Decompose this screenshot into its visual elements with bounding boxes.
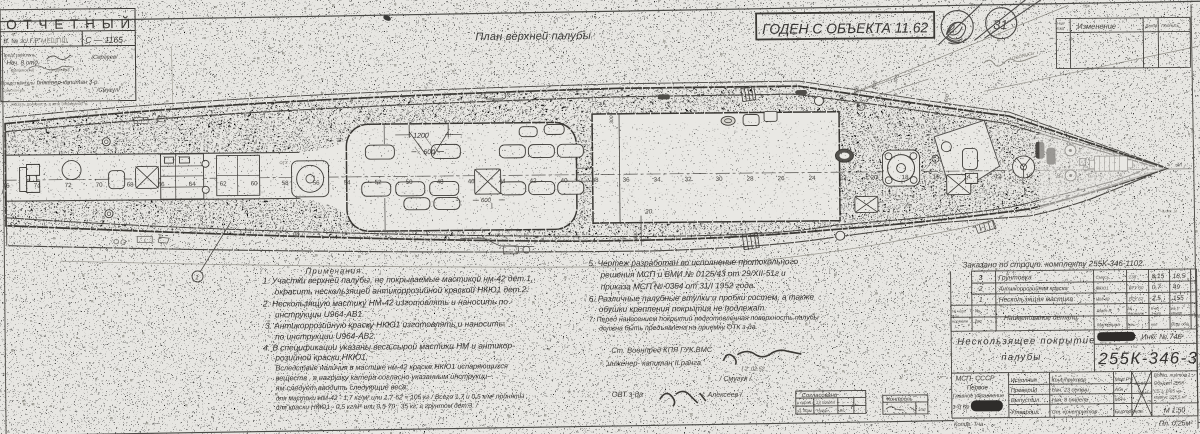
svg-text:листов 1: листов 1 (1169, 372, 1191, 378)
svg-text:МСП- СССР: МСП- СССР (956, 375, 995, 382)
svg-text:72: 72 (65, 182, 73, 189)
svg-text:розийной краски НКЮ1,: розийной краски НКЮ1, (274, 352, 368, 363)
svg-text:68: 68 (127, 181, 135, 188)
svg-text:Прим: Прим (1192, 312, 1200, 317)
svg-text:инженер-капитан 3-р.: инженер-капитан 3-р. (37, 80, 99, 87)
svg-text:нормали: нормали (952, 318, 968, 323)
svg-text:гл.: гл. (840, 408, 845, 413)
svg-text:Заказано по строит. комплект: Заказано по строит. комплекту 255К-346-1… (962, 259, 1144, 270)
svg-text:52.: 52. (1139, 391, 1145, 396)
svg-text:16.15: 16.15 (1135, 381, 1147, 386)
svg-text:Нач. 23 секции: Нач. 23 секции (1052, 387, 1089, 393)
svg-text:приказа МСП № 0364 от 31/: приказа МСП № 0364 от 31/I 1952 года. (601, 281, 756, 291)
svg-text:з-д №: з-д № (952, 403, 970, 410)
svg-text:Объект 255К: Объект 255К (1154, 380, 1186, 386)
svg-text:Нач. 8 отдела: Нач. 8 отдела (1052, 397, 1088, 403)
svg-text:Согласовано: Согласовано (802, 393, 838, 399)
svg-text:Евд: Евд (1057, 27, 1065, 31)
svg-text:Антикоррозийная краска: Антикоррозийная краска (998, 285, 1069, 293)
svg-text:28: 28 (747, 176, 755, 183)
svg-text:0,15: 0,15 (1152, 273, 1165, 280)
svg-text:Ст. Военпред КПЯ ГУК ВМС: Ст. Военпред КПЯ ГУК ВМС (611, 345, 713, 355)
svg-text:/. Алексеев /.: /. Алексеев /. (701, 392, 744, 399)
svg-text:Абч: Абч (1114, 387, 1124, 393)
svg-text:66: 66 (158, 181, 166, 188)
svg-text:Дата: Дата (1144, 23, 1157, 28)
svg-text:Ст. конструктор: Ст. конструктор (1052, 409, 1098, 415)
svg-text:3: 3 (979, 275, 983, 282)
svg-text:обушки крепления покрытия н: обушки крепления покрытия не подлежат. (599, 303, 767, 314)
svg-text:Нов: Нов (1057, 22, 1064, 26)
svg-text:Грунтовка: Грунтовка (999, 274, 1032, 281)
svg-text:(подпись): (подпись) (51, 67, 70, 72)
svg-text:НКЮ1: НКЮ1 (1096, 286, 1110, 291)
svg-text:24: 24 (809, 175, 817, 182)
svg-text:дет: дет (975, 318, 982, 323)
svg-text:Конструктор: Конструктор (1052, 377, 1087, 383)
svg-text:50: 50 (406, 179, 414, 186)
svg-text:инженер- капитан II ранга: инженер- капитан II ранга (607, 358, 701, 368)
svg-text:Нескользящая мастика: Нескользящая мастика (999, 296, 1074, 304)
svg-text:нач.: нач. (1128, 322, 1135, 327)
svg-text:255К-346-3: 255К-346-3 (1097, 349, 1198, 368)
svg-text:62: 62 (220, 181, 228, 188)
svg-text:40: 40 (561, 177, 569, 184)
svg-text:ГОДЕН С ОБЪЕКТА 11.62: ГОДЕН С ОБЪЕКТА 11.62 (762, 19, 928, 37)
svg-text:(должность): (должность) (11, 67, 35, 72)
svg-text:М 1:50: М 1:50 (1164, 407, 1186, 414)
svg-text:зам.нач-ка: зам.нач-ка (4, 88, 25, 93)
svg-text:1 шт: 1 шт (1151, 311, 1162, 316)
svg-text:( 2 .02.52: ( 2 .02.52 (741, 366, 764, 372)
svg-text:Инб. № 746: Инб. № 746 (1141, 332, 1183, 341)
svg-text:Представитель: Представитель (1, 52, 35, 58)
svg-text:Всgo общ.: Всgo общ. (1171, 321, 1190, 326)
svg-text:№: № (975, 308, 980, 313)
svg-text:инструкции U964-АВ1.: инструкции U964-АВ1. (275, 309, 365, 320)
svg-text:Наименование детали: Наименование детали (1004, 313, 1077, 322)
svg-text:должна быть предъявлена на: должна быть предъявлена на приемку ОТК з… (599, 323, 757, 333)
svg-text:46: 46 (468, 178, 476, 185)
svg-text:60: 60 (251, 180, 259, 187)
svg-text:32: 32 (685, 176, 693, 183)
svg-text:52: 52 (375, 179, 383, 186)
svg-text:18,5: 18,5 (1173, 273, 1186, 280)
svg-text:Смесь: Смесь (1096, 275, 1110, 280)
svg-text:п.п: п.п (1176, 162, 1183, 167)
svg-text:компл: компл (1171, 310, 1183, 315)
svg-text:36: 36 (623, 177, 631, 184)
svg-text:Нач. 8 отд.: Нач. 8 отд. (6, 59, 39, 66)
svg-text:300: 300 (609, 115, 615, 124)
svg-text:30: 30 (716, 176, 724, 183)
svg-text:1/52: 1/52 (918, 407, 927, 412)
svg-text:/Смукул/: /Смукул/ (96, 88, 122, 94)
svg-text:Выпустил: Выпустил (1011, 398, 1040, 404)
svg-text:План верхней палубы: План верхней палубы (475, 30, 591, 43)
svg-text:С — 1165: С — 1165 (85, 35, 123, 45)
svg-text:Подпись: Подпись (1161, 23, 1180, 28)
svg-text:600: 600 (633, 231, 639, 240)
svg-text:74: 74 (34, 182, 42, 189)
svg-text:31: 31 (993, 17, 1008, 32)
svg-text:Д. Вам: Д. Вам (797, 408, 812, 413)
svg-text:13 отдел: 13 отдел (816, 400, 836, 405)
svg-text:Быстрюков: Быстрюков (1115, 409, 1143, 415)
svg-text:Изменение: Изменение (1077, 22, 1116, 31)
svg-text:Мор Р'б: Мор Р'б (1115, 377, 1133, 383)
svg-text:МЯч: МЯч (1115, 397, 1126, 403)
svg-text:2: 2 (978, 286, 983, 293)
svg-text:ОВТ з-да: ОВТ з-да (612, 390, 643, 399)
svg-text:Материал: Материал (1097, 322, 1120, 327)
svg-text:1: 1 (195, 274, 199, 281)
svg-text:76: 76 (3, 183, 11, 190)
svg-text:ВТУ 30: ВТУ 30 (1129, 285, 1144, 290)
svg-text:Мат-л: Мат-л (1097, 308, 1112, 313)
svg-text:Нудин: Нудин (817, 408, 829, 413)
svg-text:Проверил: Проверил (1011, 388, 1038, 394)
svg-text:указать должность в акте (п: указать должность в акте (передача) (11, 101, 83, 107)
svg-text:55х: 55х (1083, 3, 1091, 8)
svg-text:Копир. Тча: Копир. Тча (954, 422, 984, 428)
svg-text:58: 58 (282, 180, 290, 187)
svg-text:54: 54 (344, 179, 352, 186)
svg-text:70: 70 (96, 182, 104, 189)
svg-text:64: 64 (189, 181, 197, 188)
svg-text:С5.1. В 25 чо: С5.1. В 25 чо (1154, 388, 1182, 393)
svg-text:Контроль: Контроль (887, 397, 913, 403)
svg-text:решения МСП и ВМИ № 0125: решения МСП и ВМИ № 0125/43 от 29/ХII-51… (600, 269, 787, 280)
svg-text:0,7: 0,7 (1152, 284, 1161, 291)
svg-text:Исполнил: Исполнил (1011, 378, 1038, 384)
svg-text:Первое: Первое (967, 384, 989, 391)
svg-text:кол: кол (1151, 322, 1158, 327)
svg-text:ВТУ 62: ВТУ 62 (1129, 296, 1144, 301)
svg-text:/ Смугул /.: / Смугул /. (719, 376, 754, 383)
svg-text:138: 138 (1129, 274, 1137, 279)
svg-text:/Сергеев/: /Сергеев/ (90, 55, 119, 61)
svg-text:49: 49 (1173, 284, 1181, 291)
svg-text:НМ-42: НМ-42 (1096, 297, 1110, 302)
svg-text:155: 155 (1173, 295, 1184, 302)
svg-text:2,5: 2,5 (1151, 295, 1161, 302)
svg-text:Чист. м: Чист. м (1160, 208, 1177, 213)
svg-text:Главное управление: Главное управление (953, 393, 1004, 399)
svg-text:42: 42 (530, 178, 538, 185)
svg-text:Утвердил: Утвердил (1010, 410, 1039, 416)
svg-text:38: 38 (592, 177, 600, 184)
svg-text:34: 34 (654, 176, 662, 183)
svg-text:Пл. 0,25м²: Пл. 0,25м² (1159, 420, 1193, 427)
svg-text:В. № зс/ Г.Р. МЕШПШ: В. № зс/ Г.Р. МЕШПШ (3, 38, 67, 46)
svg-text:56: 56 (313, 180, 321, 187)
svg-text:1: 1 (979, 297, 983, 304)
svg-text:Нескользящее покрытие: Нескользящее покрытие (957, 335, 1096, 347)
svg-text:нормали: нормали (1128, 311, 1145, 316)
svg-text:корпус 225,5 м²: корпус 225,5 м² (1154, 394, 1187, 399)
svg-text:Представитель: Представитель (1, 80, 35, 86)
svg-text:ям следует вводить следующи: ям следует вводить следующие веса: (275, 382, 409, 392)
svg-text:и офэл: и офэл (797, 400, 812, 405)
svg-text:по инструкции U964-АВ2.: по инструкции U964-АВ2. (275, 331, 376, 342)
svg-text:26: 26 (778, 175, 786, 182)
svg-text:48: 48 (437, 178, 445, 185)
svg-text:Всего: Всего (1154, 373, 1168, 379)
svg-text:палубы: палубы (1001, 352, 1041, 363)
svg-text:44: 44 (499, 178, 507, 185)
